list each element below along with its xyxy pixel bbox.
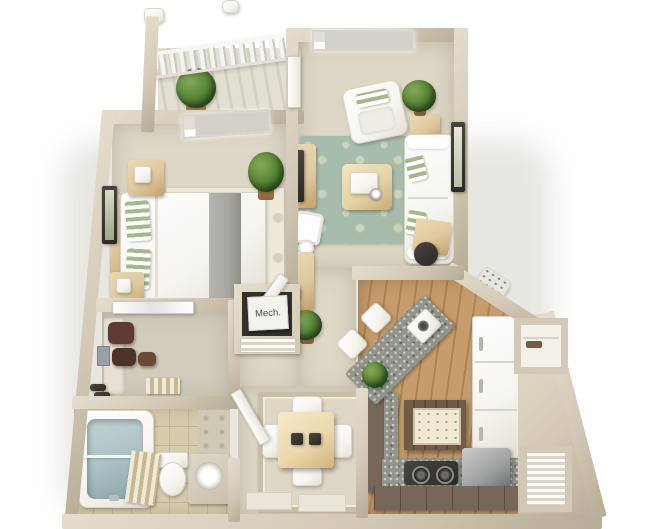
closet-mirror-door [112, 301, 194, 314]
sofa-arm [407, 137, 449, 149]
decor-dish [370, 188, 382, 200]
cutting-board [413, 408, 461, 445]
mech-room-label: Mech. [247, 295, 289, 331]
table-lamp [134, 166, 151, 183]
armchair [341, 79, 409, 146]
wall-closet-bottom [72, 396, 238, 409]
bathroom-wallpaper [198, 410, 230, 454]
placemat [291, 433, 303, 445]
armchair-pillow [355, 88, 389, 108]
office-chair [414, 242, 438, 266]
cooktop [404, 461, 458, 485]
table-lamp [116, 278, 131, 293]
floorplan-canvas: Mech. [0, 0, 650, 529]
cabinet-handle [479, 379, 483, 393]
living-wall-art [451, 122, 465, 192]
wall-bottom-outer [62, 514, 602, 529]
vessel-sink [195, 462, 223, 490]
living-room-window [312, 30, 414, 51]
balcony-door [287, 56, 301, 108]
bedroom-plant [248, 152, 284, 192]
dining-table [278, 412, 334, 468]
burner [436, 466, 454, 484]
linen-closet [514, 318, 568, 374]
art-canvas [105, 190, 114, 240]
door-mat [246, 492, 292, 510]
door-mat [298, 494, 346, 512]
sofa-pillow [404, 153, 428, 183]
vanity [188, 454, 230, 504]
art-canvas [454, 127, 462, 187]
dining-chair [332, 424, 352, 458]
bedroom-wall-art [102, 186, 117, 244]
storage-basket [146, 378, 180, 394]
wall-dining-kitchen [356, 388, 368, 518]
duvet-fold [155, 195, 158, 297]
hanging-clothes [138, 352, 156, 366]
bar-sink [406, 308, 443, 345]
shoe-pair [90, 384, 106, 391]
sink-dish [416, 318, 432, 334]
kitchen-plant [362, 362, 388, 388]
stored-shoes [526, 341, 542, 348]
utility-closet-louver-door [520, 446, 572, 512]
refrigerator-cabinet-run [472, 316, 520, 458]
hanging-clothes [112, 348, 136, 366]
bed-pillow [125, 200, 152, 242]
wall-kitchen-top [352, 266, 464, 280]
armchair-cushion [357, 105, 397, 136]
thermostat-panel [97, 346, 110, 366]
living-plant [402, 80, 436, 112]
sofa-cushion-line [408, 197, 448, 199]
base-cabinets [374, 486, 532, 510]
railing-post-cap [222, 0, 239, 13]
tub-faucet [109, 495, 119, 501]
dishwasher [462, 448, 510, 486]
burner [412, 466, 430, 484]
cabinet-handle [479, 337, 483, 351]
dining-chair [292, 466, 322, 486]
wall-bath-right-lower [228, 458, 240, 522]
coffee-table [342, 164, 392, 210]
hanging-clothes [108, 322, 134, 344]
placemat [309, 433, 321, 445]
mech-door [240, 338, 296, 353]
cabinet-handle [479, 427, 483, 441]
toilet-bowl [159, 462, 186, 496]
kitchen-island [404, 400, 466, 450]
